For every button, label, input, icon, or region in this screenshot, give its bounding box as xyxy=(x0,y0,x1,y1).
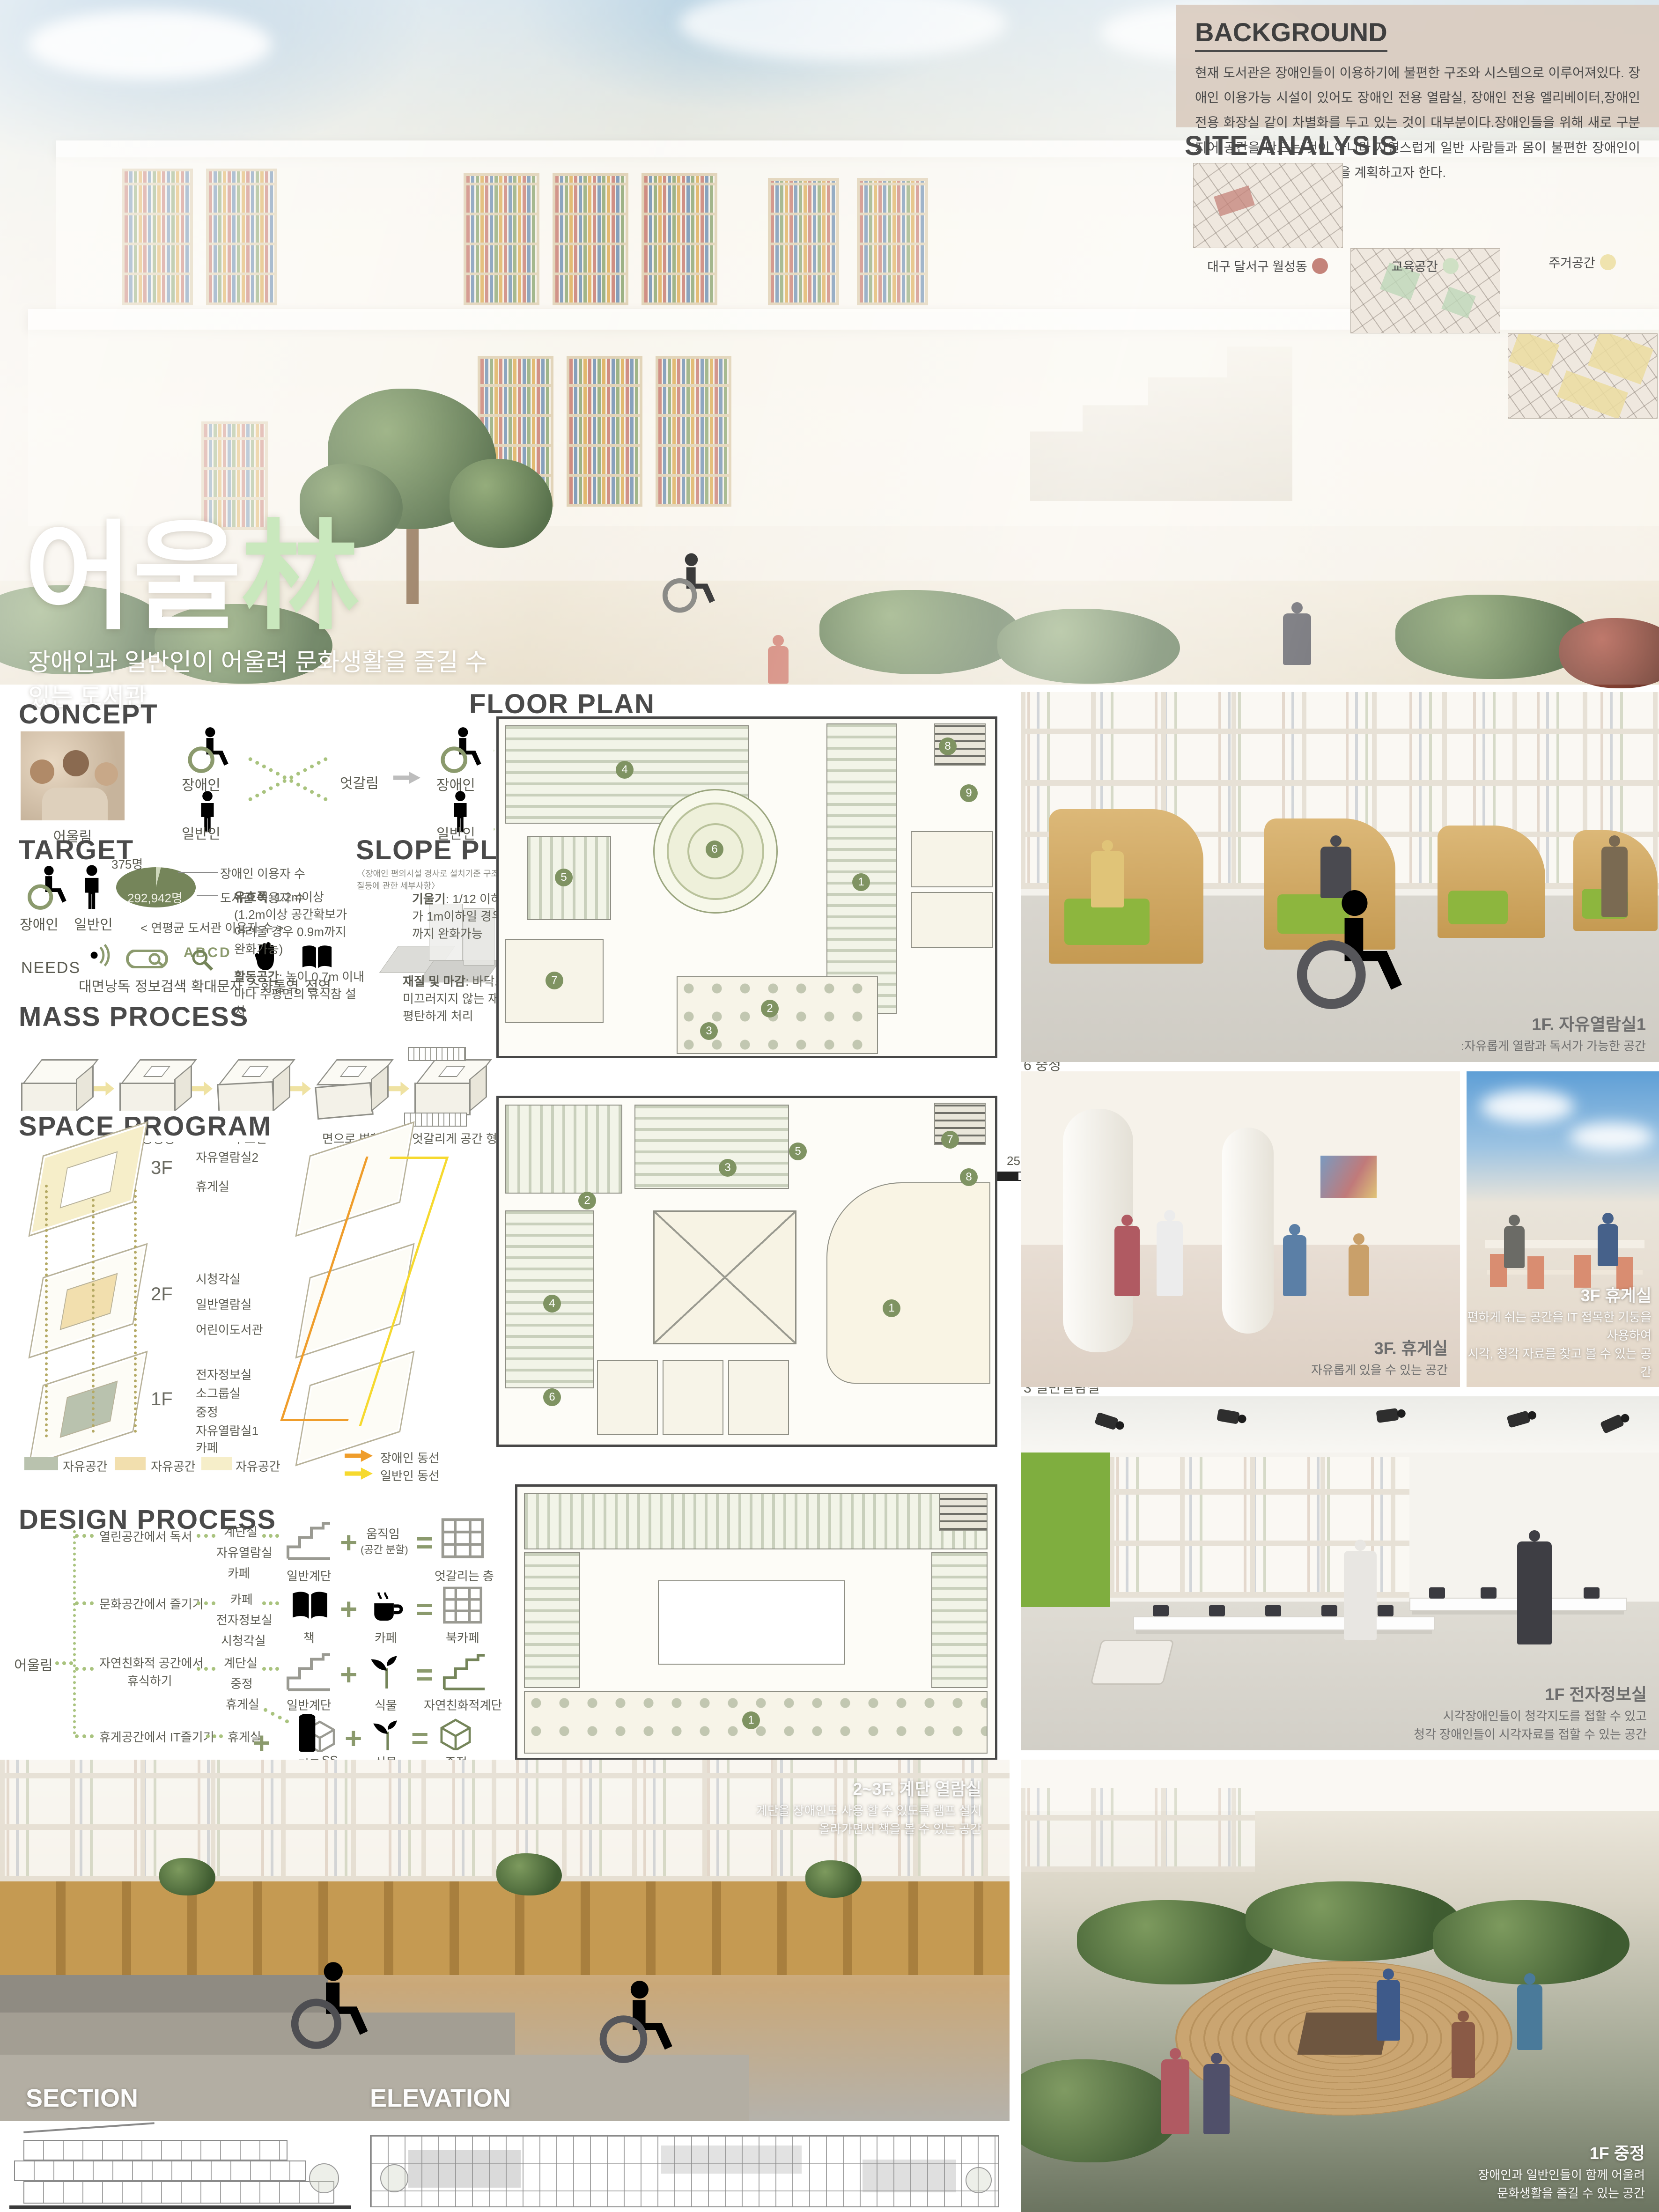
person-silhouette xyxy=(1283,613,1311,665)
plant xyxy=(496,1853,562,1895)
decor-shape xyxy=(63,750,89,776)
site-map-1 xyxy=(1193,163,1343,248)
bookshelf xyxy=(641,173,717,305)
decor-shape xyxy=(408,2150,521,2188)
plan-badge: 8 xyxy=(939,737,957,755)
wheelchair-icon xyxy=(435,727,482,774)
poster-title: 어울林 xyxy=(24,519,360,637)
render-courtyard: 1F 중정 장애인과 일반인들이 함께 어울려 문화생활을 즐길 수 있는 공간 xyxy=(1021,1760,1659,2212)
legend-label-1: 자유공간 xyxy=(63,1457,108,1475)
wheelchair-user-silhouette xyxy=(281,1961,370,2050)
bookshelf xyxy=(464,173,539,305)
render-stair-reading-room: 2~3F. 계단 열람실 계단을 장애인도 사용 할 수 있도록 램프 설치 올… xyxy=(0,1760,1010,2121)
flow-line xyxy=(73,1530,76,1734)
spec-name: 기울기 xyxy=(412,892,446,906)
person-silhouette xyxy=(1203,2064,1230,2134)
dp-r3-res: 자연친화적계단 xyxy=(424,1696,502,1713)
caption-title: 3F 휴게실 xyxy=(1467,1283,1652,1308)
person-silhouette xyxy=(1517,1984,1542,2050)
concept-general-label: 일반인 xyxy=(182,822,221,843)
person-silhouette xyxy=(1344,1551,1377,1640)
mass-step-5 xyxy=(414,1059,486,1116)
legend-label-2: 자유공간 xyxy=(151,1457,196,1475)
wall-art xyxy=(1320,1156,1377,1198)
plan-room xyxy=(826,1182,990,1384)
decor-shape xyxy=(863,2160,956,2192)
pie-big-value: 292,942명 xyxy=(127,889,183,906)
decor-shape xyxy=(408,1047,466,1061)
map-label-text: 주거공간 xyxy=(1548,253,1595,271)
tablet xyxy=(1265,1605,1281,1616)
plan-room xyxy=(505,1105,622,1194)
dp-r2-s1: 카페 xyxy=(230,1590,253,1607)
mass-step-1 xyxy=(21,1059,92,1116)
book-icon xyxy=(290,1591,330,1621)
decor-shape xyxy=(661,2146,802,2174)
plus-sign: + xyxy=(345,1723,362,1753)
arrow-right-icon xyxy=(290,1082,311,1096)
tablet xyxy=(1321,1605,1337,1616)
wheelchair-user-silhouette xyxy=(590,1980,674,2064)
person-silhouette xyxy=(1157,1221,1183,1296)
green-dot-icon xyxy=(1443,258,1459,274)
bookshelf xyxy=(768,178,839,305)
person-silhouette xyxy=(1598,1224,1618,1266)
person-silhouette xyxy=(1504,1226,1525,1268)
arrow-right-icon xyxy=(94,1082,114,1096)
flow-line xyxy=(55,1661,73,1665)
dp-r1-s3: 카페 xyxy=(228,1564,250,1581)
caption-title: 1F 전자정보실 xyxy=(1414,1682,1647,1707)
green-stairs-icon xyxy=(442,1652,487,1692)
person-silhouette xyxy=(1114,1226,1140,1296)
render-3f-lounge: 3F. 휴게실 자유롭게 있을 수 있는 공간 xyxy=(1021,1071,1460,1387)
map-highlight xyxy=(1441,287,1475,318)
book-cafe-icon xyxy=(442,1585,483,1625)
equals-sign: = xyxy=(416,1527,433,1557)
caption-line: 계단을 장애인도 사용 할 수 있도록 램프 설치 xyxy=(756,1802,981,1820)
person-silhouette xyxy=(1601,847,1628,917)
plan-badge: 2 xyxy=(761,1000,779,1018)
decor-shape xyxy=(23,2181,334,2204)
plan-room xyxy=(663,1360,723,1435)
site-map-1-label: 대구 달서구 월성동 xyxy=(1193,257,1342,275)
bush xyxy=(1077,1900,1274,1984)
dp-r3-s1: 계단실 xyxy=(224,1654,258,1671)
display-table xyxy=(1133,1616,1435,1630)
plan-room xyxy=(931,1552,988,1688)
equals-sign: = xyxy=(416,1594,433,1624)
spec-name: 활동공간 xyxy=(234,970,279,984)
round-pillar xyxy=(1222,1128,1274,1334)
person-silhouette xyxy=(1283,1235,1306,1296)
plan-badge: 6 xyxy=(706,841,723,858)
plan-stair xyxy=(939,1493,988,1531)
cloud xyxy=(1570,1123,1654,1151)
sp-room: 카페 xyxy=(196,1438,218,1456)
disabled-circ-arrow-icon xyxy=(345,1450,373,1462)
spec-name: 유효폭 xyxy=(234,890,268,904)
plan-badge: 6 xyxy=(543,1388,561,1406)
plan-badge: 1 xyxy=(742,1711,760,1729)
mass-step-4 xyxy=(316,1059,387,1116)
mass-step-3 xyxy=(218,1059,289,1116)
flow-arrow xyxy=(75,1734,94,1738)
bookshelf xyxy=(206,169,277,305)
space-program-title: SPACE PROGRAM xyxy=(19,1111,281,1142)
caption-title: 2~3F. 계단 열람실 xyxy=(756,1777,981,1802)
axon-1f-label: 1F xyxy=(151,1389,173,1410)
decor-shape xyxy=(60,1380,118,1438)
sp-room: 일반열람실 xyxy=(196,1295,252,1312)
map-highlight xyxy=(1588,333,1653,384)
lounge-chair xyxy=(1090,1640,1174,1685)
map-highlight xyxy=(1557,370,1628,419)
bookshelf xyxy=(857,178,928,305)
caption-line: 시각장애인들이 청각지도를 접할 수 있고 xyxy=(1414,1707,1647,1725)
map-highlight xyxy=(1214,185,1255,216)
person-silhouette xyxy=(1161,2059,1189,2134)
plan-skylight xyxy=(653,1210,796,1344)
pie-label-1: 장애인 이용자 수 xyxy=(220,864,305,882)
render-caption: 1F. 자유열람실1 :자유롭게 열람과 독서가 가능한 공간 xyxy=(1461,1012,1646,1055)
plan-badge: 7 xyxy=(546,972,563,989)
dp-r2-b-label: 카페 xyxy=(375,1629,397,1646)
circ-disabled-label: 장애인 동선 xyxy=(380,1449,440,1466)
slope-spec-3: 활동공간: 높이 0.7m 이내마다 수평면의 휴식참 설치 xyxy=(234,967,365,1019)
tablet xyxy=(1378,1605,1394,1616)
legend-swatch-green xyxy=(24,1457,58,1470)
dp-r2-s3: 시청각실 xyxy=(221,1631,266,1649)
plan-badge: 5 xyxy=(555,869,573,886)
sp-room: 소그룹실 xyxy=(196,1384,241,1401)
plan-2f: 1 2 3 4 5 6 7 8 xyxy=(496,1096,997,1447)
design-root-label: 어울림 xyxy=(14,1654,53,1674)
circ-general-label: 일반인 동선 xyxy=(380,1467,440,1484)
plan-room xyxy=(597,1360,658,1435)
map-label-text: 교육공간 xyxy=(1391,257,1438,275)
target-general-label: 일반인 xyxy=(74,913,113,934)
search-bar-icon xyxy=(125,950,169,968)
decor-shape xyxy=(42,788,108,820)
bush xyxy=(1246,1881,1461,1961)
plus-sign: + xyxy=(340,1659,357,1689)
site-map-3-label: 주거공간 xyxy=(1508,253,1657,271)
tablet xyxy=(1584,1587,1600,1599)
plan-room xyxy=(911,892,993,948)
cloud xyxy=(28,9,272,80)
magnify-text-icon: ABCD xyxy=(184,943,240,969)
floor-plan-title: FLOOR PLAN xyxy=(469,688,655,720)
plan-badge: 5 xyxy=(789,1143,807,1160)
caption-title: 1F. 자유열람실1 xyxy=(1461,1012,1646,1037)
need-2: 정보검색 xyxy=(135,975,186,995)
courtyard-icon xyxy=(435,1716,476,1750)
sp-room: 중정 xyxy=(196,1403,218,1420)
guide-line xyxy=(92,1199,95,1433)
render-1f-digital-room: 1F 전자정보실 시각장애인들이 청각지도를 접할 수 있고 청각 장애인들이 … xyxy=(1021,1396,1659,1750)
bookshelf xyxy=(656,356,731,507)
tree-outline xyxy=(309,2163,339,2193)
caption-line: 자유롭게 있을 수 있는 공간 xyxy=(1311,1361,1448,1379)
caption-line: 청각 장애인들이 시각자료를 접할 수 있는 공간 xyxy=(1414,1725,1647,1744)
magnifier-icon xyxy=(190,948,214,972)
title-korean: 어울 xyxy=(24,512,242,643)
background-title: BACKGROUND xyxy=(1195,17,1387,52)
legend-swatch-yellow xyxy=(201,1457,232,1470)
general-circ-arrow-icon xyxy=(345,1467,373,1480)
concept-title: CONCEPT xyxy=(19,699,158,730)
bookshelf xyxy=(567,356,642,507)
plan-badge: 3 xyxy=(700,1022,718,1040)
sp-room: 시청각실 xyxy=(196,1270,241,1287)
flow-arrow xyxy=(197,1667,215,1671)
decor-shape xyxy=(23,2122,155,2133)
sp-room: 자유열람실1 xyxy=(196,1422,258,1439)
green-accent-wall xyxy=(1021,1453,1110,1607)
bookshelf xyxy=(553,173,628,305)
red-dot-icon xyxy=(1312,258,1328,274)
wheelchair-user-silhouette xyxy=(1283,889,1405,1010)
flow-arrow xyxy=(263,1707,290,1724)
map-label-text: 대구 달서구 월성동 xyxy=(1207,257,1307,275)
legend-label-3: 자유공간 xyxy=(236,1457,280,1475)
decor-shape xyxy=(315,1082,374,1120)
decor-shape xyxy=(95,762,118,786)
plan-badge: 7 xyxy=(941,1131,959,1149)
flow-arrow xyxy=(206,1734,223,1738)
dp-r2-activity: 문화공간에서 즐기기 xyxy=(99,1595,204,1612)
dp-r3-s3: 휴게실 xyxy=(226,1695,259,1712)
sp-room: 어린이도서관 xyxy=(196,1320,263,1338)
poster-board: BACKGROUND 현재 도서관은 장애인들이 이용하기에 불편한 구조와 시… xyxy=(0,0,1659,2212)
tablet xyxy=(1209,1605,1225,1616)
caption-line: 문화생활을 즐길 수 있는 공간 xyxy=(1478,2184,1645,2203)
section-label: SECTION xyxy=(26,2084,138,2113)
plan-badge: 1 xyxy=(883,1299,900,1317)
dp-r3-activity: 자연친화적 공간에서 xyxy=(99,1654,204,1671)
plan-room xyxy=(728,1360,789,1435)
sp-room: 전자정보실 xyxy=(196,1365,252,1383)
dp-r3-a-label: 일반계단 xyxy=(287,1696,332,1713)
decor-shape xyxy=(28,330,1659,526)
title-hanja: 林 xyxy=(242,512,360,643)
dp-r1-activity: 열린공간에서 독서 xyxy=(99,1527,192,1545)
plan-room xyxy=(677,976,878,1054)
flow-arrow xyxy=(75,1534,94,1538)
hero-render: BACKGROUND 현재 도서관은 장애인들이 이용하기에 불편한 구조와 시… xyxy=(0,0,1659,685)
axon-3f-label: 3F xyxy=(151,1158,173,1179)
render-caption: 3F 휴게실 편하게 쉬는 공간을 IT 접목한 기둥을 사용하여 시각, 청각… xyxy=(1467,1283,1652,1381)
flow-arrow xyxy=(75,1601,94,1605)
caption-title: 1F 중정 xyxy=(1478,2141,1645,2166)
render-caption: 1F 중정 장애인과 일반인들이 함께 어울려 문화생활을 즐길 수 있는 공간 xyxy=(1478,2141,1645,2203)
pod-cushion xyxy=(1448,891,1508,924)
person-silhouette xyxy=(768,646,789,684)
plan-badge: 9 xyxy=(960,784,978,802)
plan-badge: 1 xyxy=(852,873,870,891)
caption-line: 올라가면서 책을 볼 수 있는 공간 xyxy=(756,1820,981,1838)
pie-small-value: 375명 xyxy=(111,855,143,872)
stairs-icon xyxy=(286,1652,332,1692)
dp-r2-a-label: 책 xyxy=(303,1629,315,1646)
render-1f-reading-room: 1F. 자유열람실1 :자유롭게 열람과 독서가 가능한 공간 xyxy=(1021,692,1659,1062)
person-silhouette xyxy=(1377,1980,1400,2041)
bookshelf-wall xyxy=(1021,1788,1255,1872)
dp-r3-b-label: 식물 xyxy=(375,1696,397,1713)
flow-arrow xyxy=(262,1601,279,1605)
dp-r1-res: 엇갈리는 층 xyxy=(435,1567,494,1584)
plant-icon xyxy=(371,1719,405,1750)
voice-icon xyxy=(88,942,114,968)
caption-line: :자유롭게 열람과 독서가 가능한 공간 xyxy=(1461,1037,1646,1055)
decor-shape xyxy=(60,1151,118,1208)
decor-shape xyxy=(23,2140,288,2160)
background-panel: BACKGROUND 현재 도서관은 장애인들이 이용하기에 불편한 구조와 시… xyxy=(1176,5,1659,127)
study-pod xyxy=(1049,809,1203,964)
decor-shape xyxy=(30,759,54,784)
plus-sign: + xyxy=(253,1728,270,1758)
flow-arrow xyxy=(75,1667,94,1671)
caption-line: 장애인과 일반인들이 함께 어울려 xyxy=(1478,2166,1645,2184)
plan-3f: 1 xyxy=(515,1484,997,1761)
dp-r1-b: 움직임 xyxy=(366,1525,400,1542)
tablet xyxy=(1429,1587,1445,1599)
render-caption: 1F 전자정보실 시각장애인들이 청각지도를 접할 수 있고 청각 장애인들이 … xyxy=(1414,1682,1647,1744)
arrow-right-icon xyxy=(192,1082,213,1096)
plan-room xyxy=(826,723,897,1014)
elevation-label: ELEVATION xyxy=(370,2084,511,2113)
flow-arrow xyxy=(197,1534,215,1538)
leader-line xyxy=(178,872,218,873)
plan-void xyxy=(658,1580,845,1665)
plus-sign: + xyxy=(340,1594,357,1624)
plus-sign: + xyxy=(340,1527,357,1557)
dp-r1-s1: 계단실 xyxy=(224,1523,258,1540)
dp-r3-s2: 중정 xyxy=(230,1674,253,1692)
arrow-right-icon xyxy=(389,1082,409,1096)
plan-badge: 4 xyxy=(616,761,634,779)
sp-room: 휴게실 xyxy=(196,1177,229,1194)
arrow-right-icon xyxy=(393,772,420,784)
guide-line xyxy=(134,1189,137,1433)
equals-sign: = xyxy=(416,1659,433,1689)
leader-line xyxy=(197,895,218,896)
render-caption: 3F. 휴게실 자유롭게 있을 수 있는 공간 xyxy=(1311,1336,1448,1379)
spec-name: 재질 및 마감 xyxy=(403,974,465,988)
plan-1f: 4 5 6 1 2 3 7 8 9 xyxy=(496,716,997,1058)
concept-photo xyxy=(21,731,125,820)
decor-shape xyxy=(14,2160,306,2181)
axon-2f-label: 2F xyxy=(151,1284,173,1305)
person-silhouette xyxy=(1349,1245,1369,1296)
bush xyxy=(1433,1900,1630,1984)
cloud xyxy=(679,0,1007,61)
caption-title: 3F. 휴게실 xyxy=(1311,1336,1448,1361)
tablet xyxy=(1481,1587,1497,1599)
legend-swatch-tan xyxy=(115,1457,146,1470)
wheelchair-icon xyxy=(22,865,67,910)
mass-step-2 xyxy=(119,1059,191,1116)
site-map-3 xyxy=(1508,333,1658,419)
dp-r3-activity2: 휴식하기 xyxy=(127,1672,172,1689)
site-analysis-title: SITE ANALYSIS xyxy=(1185,130,1399,162)
render-3f-rooftop: 3F 휴게실 편하게 쉬는 공간을 IT 접목한 기둥을 사용하여 시각, 청각… xyxy=(1467,1071,1659,1387)
plan-room xyxy=(911,831,993,887)
plan-badge: 4 xyxy=(543,1295,561,1312)
wheelchair-user-silhouette xyxy=(656,553,716,613)
section-drawing xyxy=(9,2135,351,2209)
stairs-icon xyxy=(286,1521,332,1561)
coffee-cup-icon xyxy=(370,1590,405,1623)
tablet xyxy=(1153,1605,1169,1616)
dp-r2-s2: 전자정보실 xyxy=(216,1611,273,1628)
cloud xyxy=(1481,1090,1574,1123)
site-map-2-label: 교육공간 xyxy=(1350,257,1499,275)
equals-sign: = xyxy=(411,1723,428,1753)
render-caption: 2~3F. 계단 열람실 계단을 장애인도 사용 할 수 있도록 램프 설치 올… xyxy=(756,1777,981,1838)
person-silhouette xyxy=(1452,2022,1475,2078)
mass-step-5-label: 엇갈리게 공간 형성 xyxy=(412,1129,509,1147)
dp-r1-s2: 자유열람실 xyxy=(216,1543,273,1561)
sp-room: 자유열람실2 xyxy=(196,1148,258,1165)
caption-line: 시각, 청각 자료를 찾고 볼 수 있는 공간 xyxy=(1467,1345,1652,1381)
guide-line xyxy=(45,1185,48,1438)
wood-shelf-band xyxy=(0,1881,1010,1975)
plant xyxy=(159,1858,215,1895)
bookshelf xyxy=(122,169,193,305)
plan-badge: 8 xyxy=(960,1168,978,1186)
need-1: 대면낭독 xyxy=(79,975,130,995)
tree-outline xyxy=(966,2167,992,2193)
plan-badge: 2 xyxy=(578,1192,596,1209)
plan-room xyxy=(634,1105,789,1189)
concept-x-label: 엇갈림 xyxy=(340,772,379,792)
study-pod xyxy=(1438,826,1545,938)
person-icon xyxy=(75,864,109,910)
dp-r2-res: 북카페 xyxy=(446,1629,479,1646)
plant-icon xyxy=(368,1655,406,1688)
shifted-floors-icon xyxy=(440,1517,485,1559)
map-highlight xyxy=(1509,333,1560,376)
flow-arrow xyxy=(262,1534,279,1538)
flow-arrow xyxy=(197,1601,215,1605)
plan-badge: 3 xyxy=(719,1159,737,1177)
plan-room xyxy=(524,1493,988,1549)
plant xyxy=(805,1860,862,1898)
person-silhouette xyxy=(1517,1541,1552,1644)
person-silhouette xyxy=(1091,851,1124,907)
flow-arrow xyxy=(262,1667,279,1671)
decor-shape xyxy=(414,1083,471,1115)
tree-outline xyxy=(380,2164,408,2192)
plan-room xyxy=(524,1552,580,1688)
elevation-drawing xyxy=(370,2135,999,2207)
slope-spec-1: 유효폭: 1.2m이상 (1.2m이상 공간확보가 어려울 경우 0.9m까지 … xyxy=(234,888,356,957)
wheelchair-icon xyxy=(183,727,229,774)
caption-line: 편하게 쉬는 공간을 IT 접목한 기둥을 사용하여 xyxy=(1467,1308,1652,1345)
needs-title: NEEDS xyxy=(21,959,81,977)
yellow-dot-icon xyxy=(1600,254,1616,270)
dp-r1-b2: (공간 분할) xyxy=(361,1541,408,1556)
mass-process-title: MASS PROCESS xyxy=(19,1001,249,1032)
column-icon xyxy=(295,1713,319,1754)
dp-r1-a-label: 일반계단 xyxy=(287,1567,332,1584)
decor-shape xyxy=(60,1273,118,1330)
target-disabled-label: 장애인 xyxy=(20,913,59,934)
bush xyxy=(1021,2059,1180,2162)
dp-r4-activity: 휴게공간에서 IT즐기기 xyxy=(99,1728,214,1745)
